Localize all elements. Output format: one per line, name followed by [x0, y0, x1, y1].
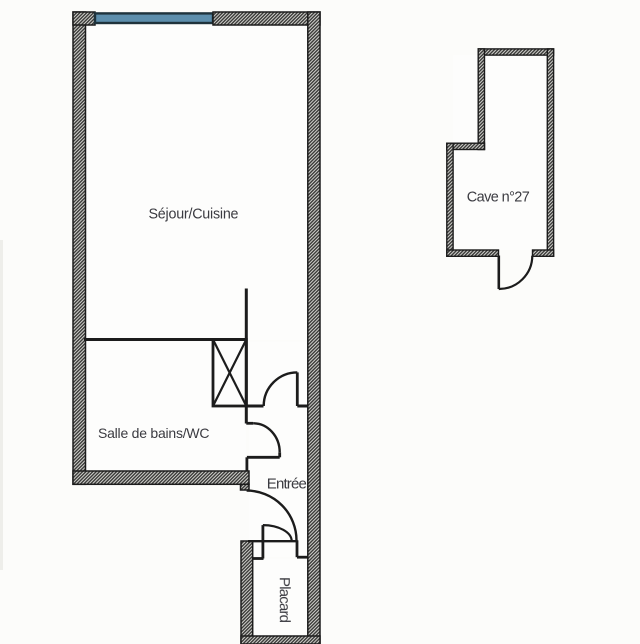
svg-text:Entrée: Entrée — [267, 476, 307, 493]
svg-text:Séjour/Cuisine: Séjour/Cuisine — [149, 206, 239, 222]
svg-text:Salle de bains/WC: Salle de bains/WC — [98, 425, 210, 441]
svg-text:Placard: Placard — [276, 577, 293, 623]
svg-text:Cave n°27: Cave n°27 — [467, 189, 530, 205]
